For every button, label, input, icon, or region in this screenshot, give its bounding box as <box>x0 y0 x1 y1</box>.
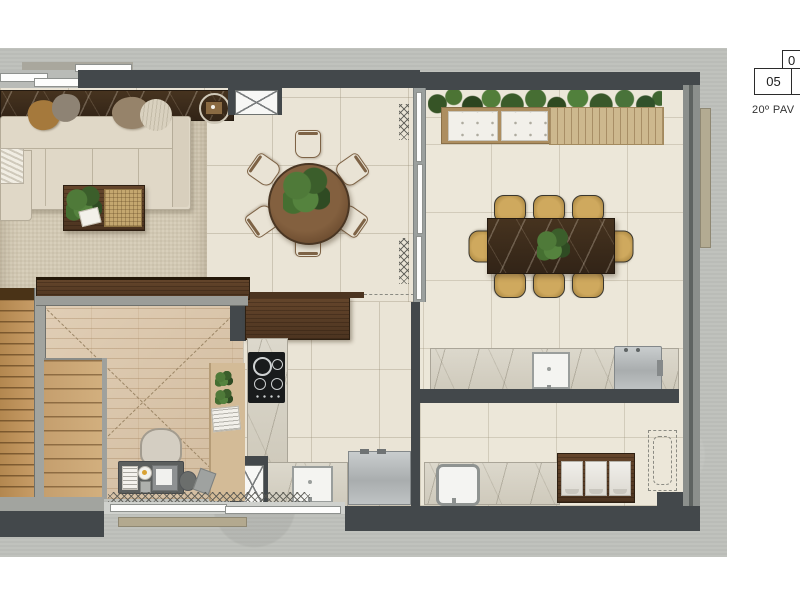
sliding-door-glass <box>416 236 422 300</box>
right-brise-fin <box>700 108 711 248</box>
desk-plate-food <box>142 470 147 475</box>
entry-shaft-duct <box>235 90 278 115</box>
ironing-board-projection-inner <box>653 436 672 485</box>
cooktop-burner <box>271 378 283 390</box>
keyplan-floor-label: 20º PAV <box>752 104 795 116</box>
kitchen-terrace-wall <box>411 302 420 507</box>
island-shelf <box>250 292 364 298</box>
sofa-backrest-line <box>2 148 187 149</box>
cooktop-burner <box>272 359 283 370</box>
wood-deck <box>549 107 664 145</box>
gourmet-sink <box>532 352 570 389</box>
grill-knob <box>636 348 640 352</box>
keyplan-unit-current[interactable]: 05 <box>754 68 793 95</box>
keyplan-unit-current-label: 05 <box>766 74 780 89</box>
floorplan-page: 0 05 20º PAV <box>0 0 800 600</box>
sliding-door-glass <box>416 92 422 162</box>
bottom-brise-fin <box>118 517 247 527</box>
refrigerator-handle <box>360 449 369 454</box>
cooktop-knobs <box>254 395 280 398</box>
bench-cushion <box>501 111 548 141</box>
grill <box>614 346 662 391</box>
guardrail-hatch <box>108 492 310 502</box>
laundry-wall-stub <box>657 492 683 506</box>
sofa-armrest <box>172 117 189 207</box>
laundry-basket <box>585 461 607 496</box>
desk-notepad <box>122 466 138 490</box>
terrace-top-wall <box>420 72 700 90</box>
refrigerator <box>348 451 411 505</box>
gourmet-sink-drain <box>547 367 551 371</box>
window-pane <box>34 78 80 87</box>
laundry-basket <box>609 461 631 496</box>
coffee-table-rattan-tray <box>104 189 142 227</box>
door-slide-mark <box>399 104 409 140</box>
terrace-chair <box>533 271 565 298</box>
staircase-inner-flight <box>44 358 102 501</box>
window-pane <box>225 506 341 514</box>
refrigerator-handle <box>377 449 386 454</box>
kitchen-island <box>245 297 350 340</box>
laundry-tub <box>436 464 480 506</box>
terrace-chair <box>494 271 526 298</box>
bench-cushion <box>448 111 498 141</box>
staircase-top-landing <box>0 288 34 300</box>
keyplan-unit-top-label: 0 <box>788 53 795 68</box>
staircase-inner-rail <box>102 358 107 499</box>
top-wall <box>78 70 420 88</box>
sofa-seat-divider <box>45 149 46 206</box>
cooktop-burner <box>254 378 266 390</box>
console-decor-dot <box>211 105 215 109</box>
terrace-chair <box>572 271 604 298</box>
sliding-door-glass <box>417 164 423 234</box>
door-slide-mark <box>399 238 409 284</box>
desk-laptop-screen <box>156 469 172 485</box>
dining-chair <box>295 130 321 158</box>
right-exterior-wall <box>683 85 700 510</box>
laundry-basket <box>561 461 583 496</box>
bottom-left-wall <box>0 511 104 537</box>
kitchen-sink-drain <box>308 480 312 484</box>
office-papers <box>211 406 241 433</box>
island-projection-line <box>364 294 414 295</box>
office-top-wall <box>36 296 248 306</box>
office-plant <box>215 389 233 405</box>
keyplan-unit-top[interactable]: 0 <box>782 50 800 70</box>
keyplan-unit-right[interactable] <box>791 68 800 95</box>
table-centerpiece-plant <box>283 167 330 216</box>
cooktop-burner <box>253 357 272 376</box>
staircase-outer-flight <box>0 288 34 497</box>
bottom-left-ledge <box>0 499 104 511</box>
bottom-wall <box>345 506 700 531</box>
grill-handle <box>657 360 663 376</box>
throw-blanket <box>0 148 24 184</box>
window-pane <box>110 504 227 512</box>
terrace-laundry-wall <box>420 389 679 403</box>
office-plant <box>215 371 233 387</box>
terrace-centerpiece-plant <box>537 228 570 262</box>
grill-knob <box>624 348 628 352</box>
